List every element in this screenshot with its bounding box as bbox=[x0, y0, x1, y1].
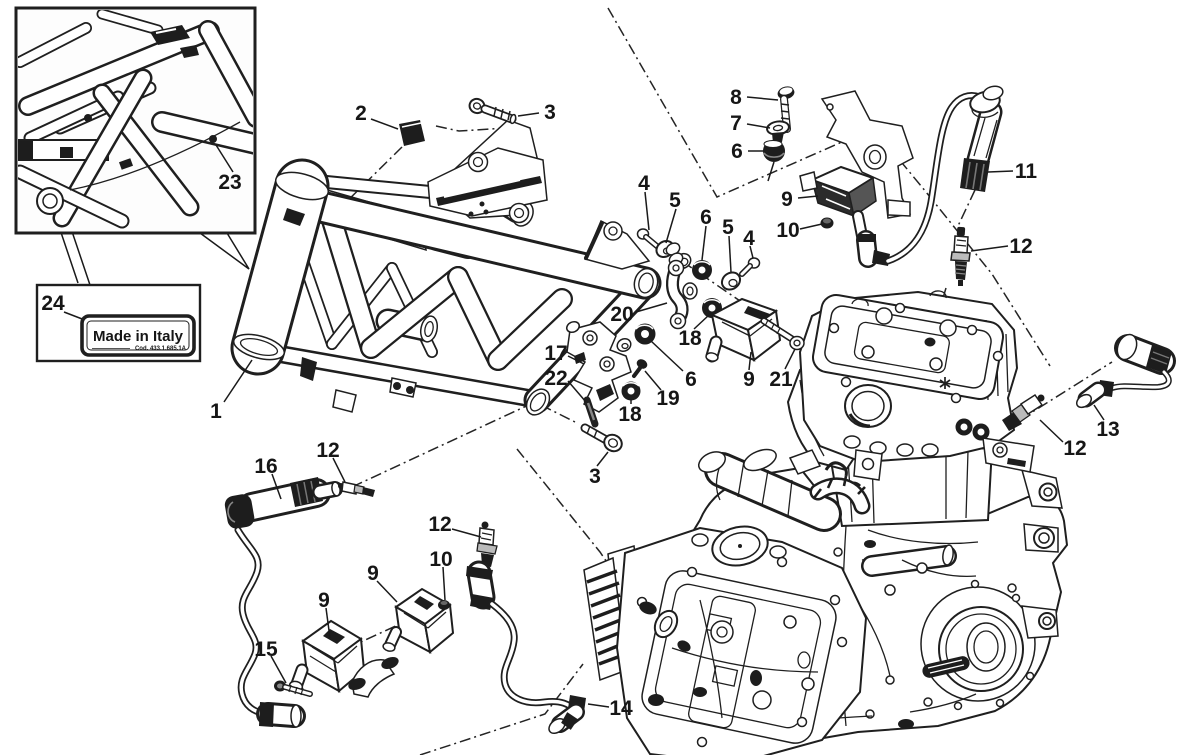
svg-text:6: 6 bbox=[685, 368, 697, 391]
svg-text:3: 3 bbox=[544, 101, 556, 124]
svg-text:17: 17 bbox=[544, 342, 567, 365]
svg-text:18: 18 bbox=[678, 327, 702, 350]
svg-text:1: 1 bbox=[210, 400, 222, 423]
svg-text:Made in Italy: Made in Italy bbox=[93, 328, 184, 345]
svg-text:11: 11 bbox=[1015, 160, 1038, 183]
svg-text:20: 20 bbox=[610, 303, 633, 326]
svg-text:10: 10 bbox=[776, 219, 799, 242]
svg-text:12: 12 bbox=[1063, 437, 1086, 460]
svg-text:6: 6 bbox=[731, 140, 743, 163]
svg-text:7: 7 bbox=[730, 112, 742, 135]
svg-text:12: 12 bbox=[316, 439, 339, 462]
svg-text:Cod. 433.1.685.1A: Cod. 433.1.685.1A bbox=[135, 346, 187, 352]
svg-text:9: 9 bbox=[781, 188, 793, 211]
svg-text:10: 10 bbox=[429, 548, 452, 571]
svg-text:21: 21 bbox=[769, 368, 793, 391]
svg-text:14: 14 bbox=[609, 697, 633, 720]
svg-text:16: 16 bbox=[254, 455, 277, 478]
svg-text:9: 9 bbox=[318, 589, 330, 612]
svg-text:5: 5 bbox=[722, 216, 734, 239]
svg-text:22: 22 bbox=[544, 367, 567, 390]
svg-text:18: 18 bbox=[618, 403, 642, 426]
svg-text:9: 9 bbox=[743, 368, 755, 391]
svg-text:12: 12 bbox=[1009, 235, 1032, 258]
svg-text:6: 6 bbox=[700, 206, 712, 229]
svg-text:23: 23 bbox=[218, 171, 241, 194]
svg-text:2: 2 bbox=[355, 102, 367, 125]
svg-text:24: 24 bbox=[41, 292, 65, 315]
svg-text:4: 4 bbox=[638, 172, 650, 195]
svg-text:4: 4 bbox=[743, 227, 755, 250]
svg-text:19: 19 bbox=[656, 387, 679, 410]
svg-text:3: 3 bbox=[589, 465, 601, 488]
svg-text:5: 5 bbox=[669, 189, 681, 212]
svg-text:8: 8 bbox=[730, 86, 742, 109]
svg-text:12: 12 bbox=[428, 513, 451, 536]
svg-text:15: 15 bbox=[254, 638, 278, 661]
svg-text:13: 13 bbox=[1096, 418, 1119, 441]
svg-text:9: 9 bbox=[367, 562, 379, 585]
